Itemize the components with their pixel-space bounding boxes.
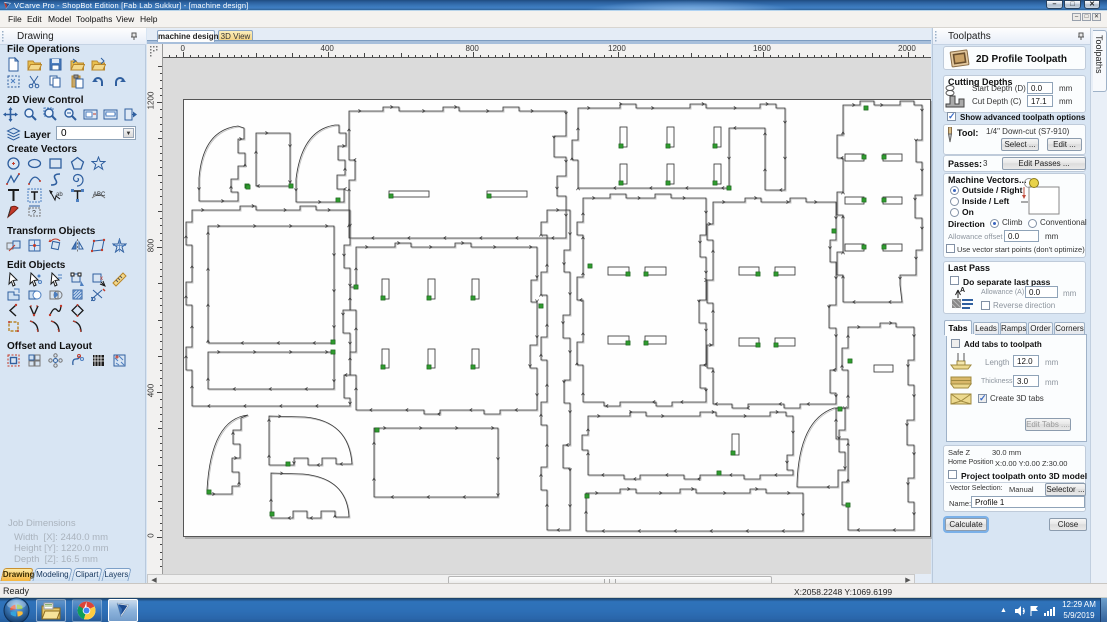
svg-text:ABC: ABC [93, 192, 106, 198]
svg-text:?: ? [32, 210, 36, 217]
svg-text:A: A [960, 287, 965, 294]
svg-text:x: x [100, 276, 103, 282]
svg-text:ab: ab [56, 192, 63, 198]
